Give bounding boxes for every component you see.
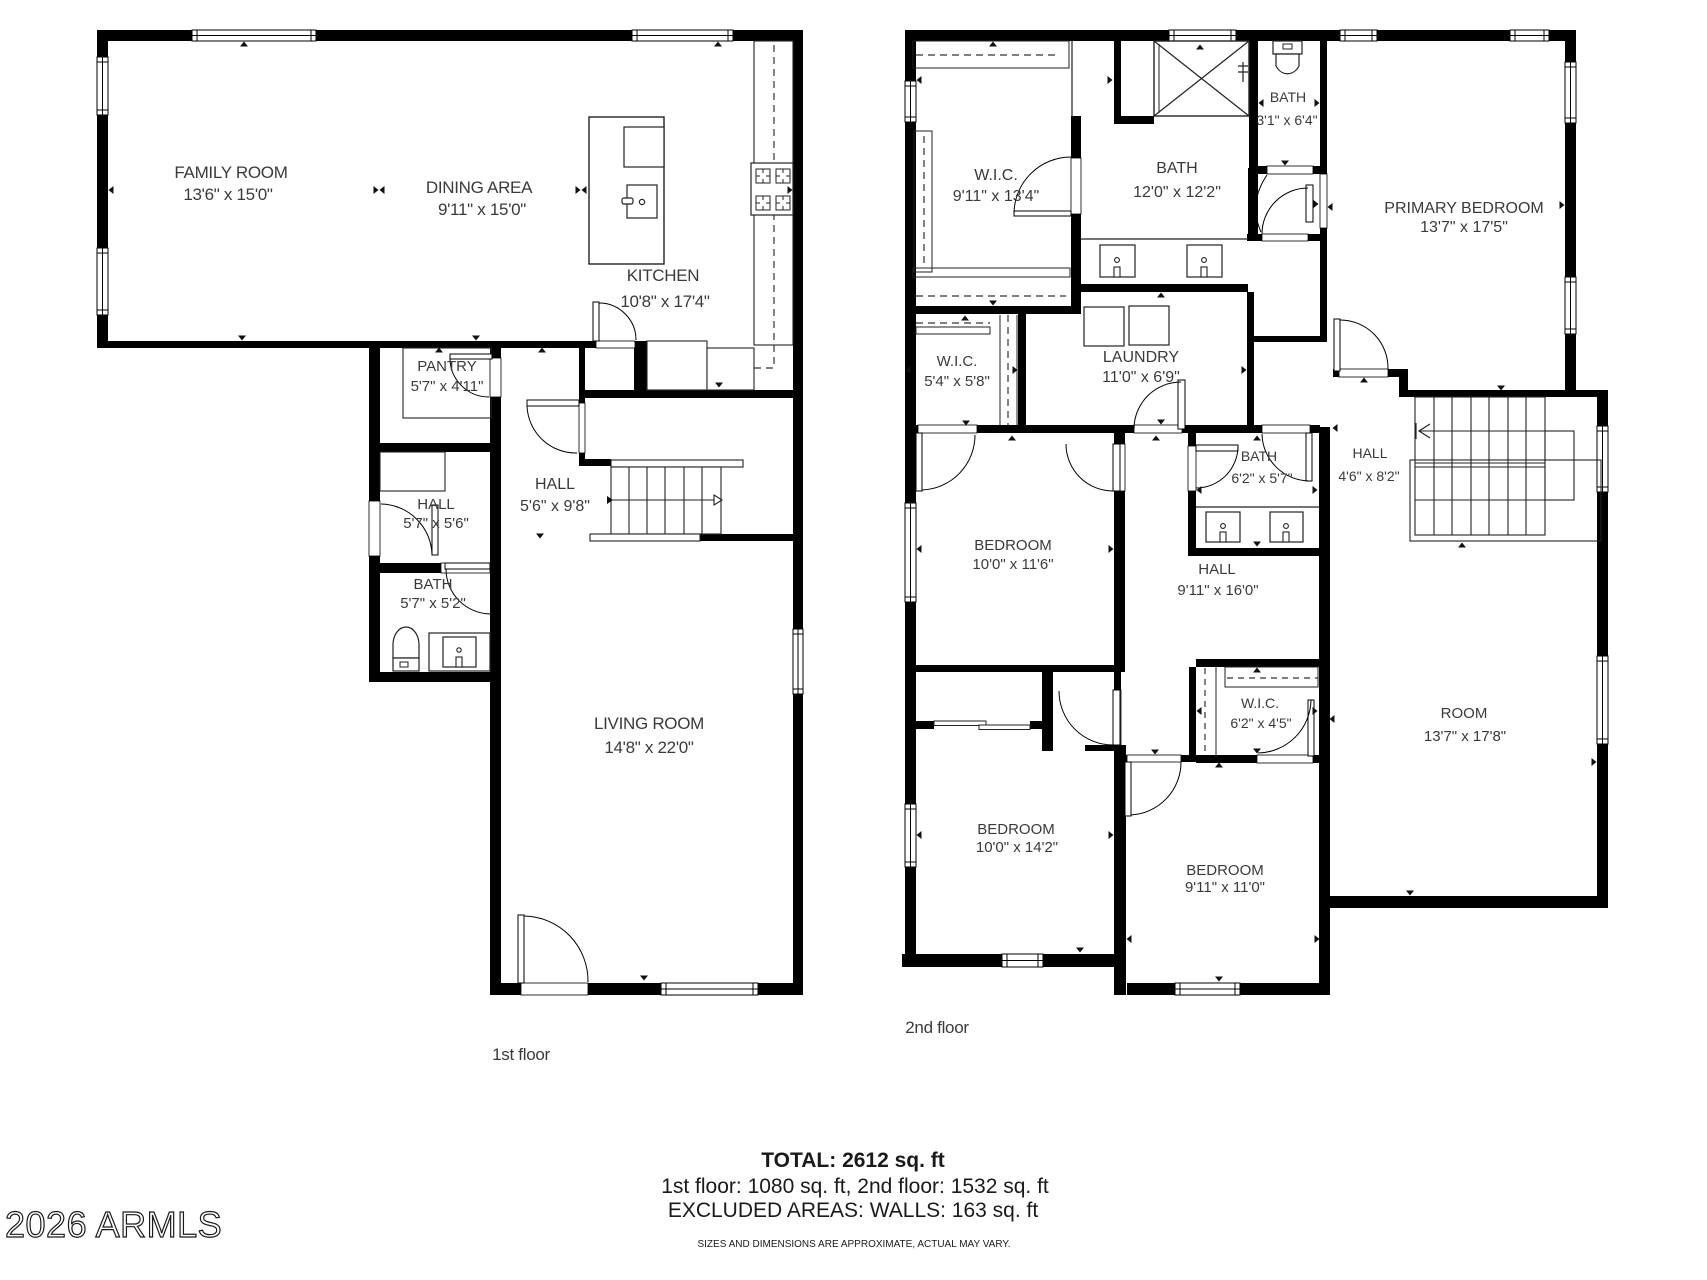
svg-text:KITCHEN: KITCHEN [627, 266, 700, 285]
svg-text:1st floor: 1080 sq. ft, 2nd fl: 1st floor: 1080 sq. ft, 2nd floor: 1532 … [661, 1175, 1049, 1198]
svg-text:W.I.C.: W.I.C. [937, 353, 978, 370]
svg-text:HALL: HALL [417, 496, 455, 513]
svg-text:ROOM: ROOM [1441, 705, 1488, 722]
svg-text:LAUNDRY: LAUNDRY [1103, 349, 1180, 366]
svg-text:6'2" x 5'7": 6'2" x 5'7" [1231, 470, 1292, 486]
svg-text:BATH: BATH [1270, 89, 1306, 105]
svg-text:5'7" x 5'2": 5'7" x 5'2" [400, 595, 466, 612]
svg-text:W.I.C.: W.I.C. [974, 167, 1018, 184]
svg-text:2nd floor: 2nd floor [905, 1018, 969, 1037]
svg-text:W.I.C.: W.I.C. [1241, 695, 1279, 711]
svg-text:11'0" x 6'9": 11'0" x 6'9" [1102, 369, 1180, 386]
svg-text:TOTAL: 2612 sq. ft: TOTAL: 2612 sq. ft [761, 1149, 945, 1172]
svg-text:13'6" x 15'0": 13'6" x 15'0" [183, 185, 273, 204]
svg-text:BATH: BATH [1156, 160, 1197, 177]
svg-text:6'2" x 4'5": 6'2" x 4'5" [1230, 715, 1291, 731]
svg-text:3'1" x 6'4": 3'1" x 6'4" [1256, 112, 1317, 128]
svg-text:HALL: HALL [1198, 561, 1236, 578]
svg-text:EXCLUDED AREAS: WALLS: 163 sq.: EXCLUDED AREAS: WALLS: 163 sq. ft [668, 1199, 1039, 1222]
svg-text:13'7" x 17'8": 13'7" x 17'8" [1424, 728, 1506, 745]
svg-text:HALL: HALL [1352, 445, 1387, 461]
svg-text:10'0" x 14'2": 10'0" x 14'2" [976, 839, 1058, 856]
svg-text:13'7" x 17'5": 13'7" x 17'5" [1420, 219, 1508, 236]
svg-text:9'11" x 11'0": 9'11" x 11'0" [1185, 879, 1265, 896]
svg-text:PRIMARY BEDROOM: PRIMARY BEDROOM [1384, 200, 1543, 217]
svg-text:10'0" x 11'6": 10'0" x 11'6" [972, 556, 1053, 573]
svg-text:10'8" x 17'4": 10'8" x 17'4" [620, 292, 710, 311]
svg-text:14'8" x 22'0": 14'8" x 22'0" [604, 738, 694, 757]
svg-text:4'6" x 8'2": 4'6" x 8'2" [1338, 468, 1399, 484]
svg-text:1st floor: 1st floor [492, 1045, 550, 1064]
svg-text:HALL: HALL [535, 476, 575, 493]
svg-text:5'7" x 4'11": 5'7" x 4'11" [411, 378, 484, 395]
svg-text:12'0" x 12'2": 12'0" x 12'2" [1133, 184, 1221, 201]
svg-text:2026 ARMLS: 2026 ARMLS [5, 1204, 222, 1245]
svg-text:BEDROOM: BEDROOM [977, 821, 1055, 838]
svg-text:BATH: BATH [414, 576, 453, 593]
svg-text:5'6" x 9'8": 5'6" x 9'8" [520, 498, 590, 515]
svg-text:FAMILY ROOM: FAMILY ROOM [174, 163, 287, 182]
svg-text:9'11" x 13'4": 9'11" x 13'4" [953, 188, 1040, 205]
svg-text:BATH: BATH [1241, 448, 1277, 464]
svg-text:BEDROOM: BEDROOM [1186, 862, 1264, 879]
svg-text:SIZES AND DIMENSIONS ARE APPRO: SIZES AND DIMENSIONS ARE APPROXIMATE, AC… [697, 1239, 1010, 1250]
svg-text:9'11" x 16'0": 9'11" x 16'0" [1177, 582, 1258, 599]
svg-text:5'7" x 5'6": 5'7" x 5'6" [403, 515, 469, 532]
svg-text:DINING AREA: DINING AREA [426, 178, 533, 197]
svg-text:BEDROOM: BEDROOM [974, 537, 1052, 554]
svg-text:PANTRY: PANTRY [417, 358, 476, 375]
svg-text:9'11" x 15'0": 9'11" x 15'0" [438, 200, 526, 219]
svg-text:5'4" x 5'8": 5'4" x 5'8" [924, 373, 990, 390]
svg-text:LIVING ROOM: LIVING ROOM [594, 714, 704, 733]
